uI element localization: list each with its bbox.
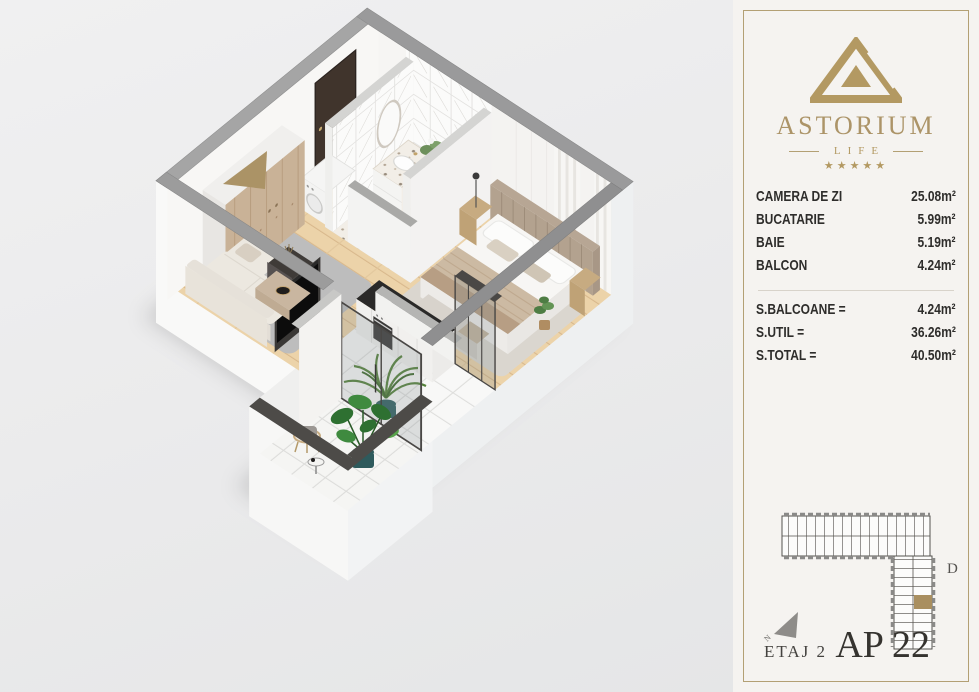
total-row: S.BALCOANE = 4.24m² <box>756 301 956 324</box>
room-row: BAIE 5.19m² <box>756 234 956 257</box>
room-value: 25.08m² <box>911 188 956 205</box>
total-value: 40.50m² <box>911 347 956 364</box>
room-row: BUCATARIE 5.99m² <box>756 211 956 234</box>
total-value: 36.26m² <box>911 324 956 341</box>
total-label: S.UTIL = <box>756 324 804 341</box>
highlighted-unit <box>914 595 932 609</box>
page: ASTORIUM LIFE ★★★★★ CAMERA DE ZI 25.08m²… <box>0 0 979 692</box>
floor-label: ETAJ 2 <box>764 642 827 662</box>
headboard-end <box>593 246 600 296</box>
total-value: 4.24m² <box>918 301 956 318</box>
room-label: BAIE <box>756 234 785 251</box>
room-value: 4.24m² <box>918 257 956 274</box>
info-panel: ASTORIUM LIFE ★★★★★ CAMERA DE ZI 25.08m²… <box>733 0 979 692</box>
building-wing-horizontal <box>782 514 930 558</box>
total-label: S.TOTAL = <box>756 347 816 364</box>
brand-sub-row: LIFE <box>744 145 968 157</box>
rule-left <box>789 151 819 152</box>
room-row: CAMERA DE ZI 25.08m² <box>756 188 956 211</box>
rule-right <box>893 151 923 152</box>
brand-name: ASTORIUM <box>744 111 968 141</box>
floorplan-area <box>0 0 733 692</box>
room-list: CAMERA DE ZI 25.08m² BUCATARIE 5.99m² BA… <box>756 188 956 370</box>
logo-mark <box>810 37 902 103</box>
decor-bowl <box>276 287 290 295</box>
total-label: S.BALCOANE = <box>756 301 846 318</box>
room-label: BALCON <box>756 257 807 274</box>
brand-sub: LIFE <box>827 145 885 157</box>
room-label: BUCATARIE <box>756 211 825 228</box>
building-label: D <box>947 561 958 577</box>
brand-stars: ★★★★★ <box>744 159 968 172</box>
bottom-row: ETAJ 2 AP 22 <box>744 623 968 667</box>
room-row: BALCON 4.24m² <box>756 257 956 280</box>
total-row: S.UTIL = 36.26m² <box>756 324 956 347</box>
room-value: 5.99m² <box>918 211 956 228</box>
room-value: 5.19m² <box>918 234 956 251</box>
divider <box>758 290 954 291</box>
logo <box>744 37 968 103</box>
room-label: CAMERA DE ZI <box>756 188 842 205</box>
floorplan-3d <box>0 0 733 692</box>
total-row: S.TOTAL = 40.50m² <box>756 347 956 370</box>
apartment-label: AP 22 <box>835 623 930 667</box>
